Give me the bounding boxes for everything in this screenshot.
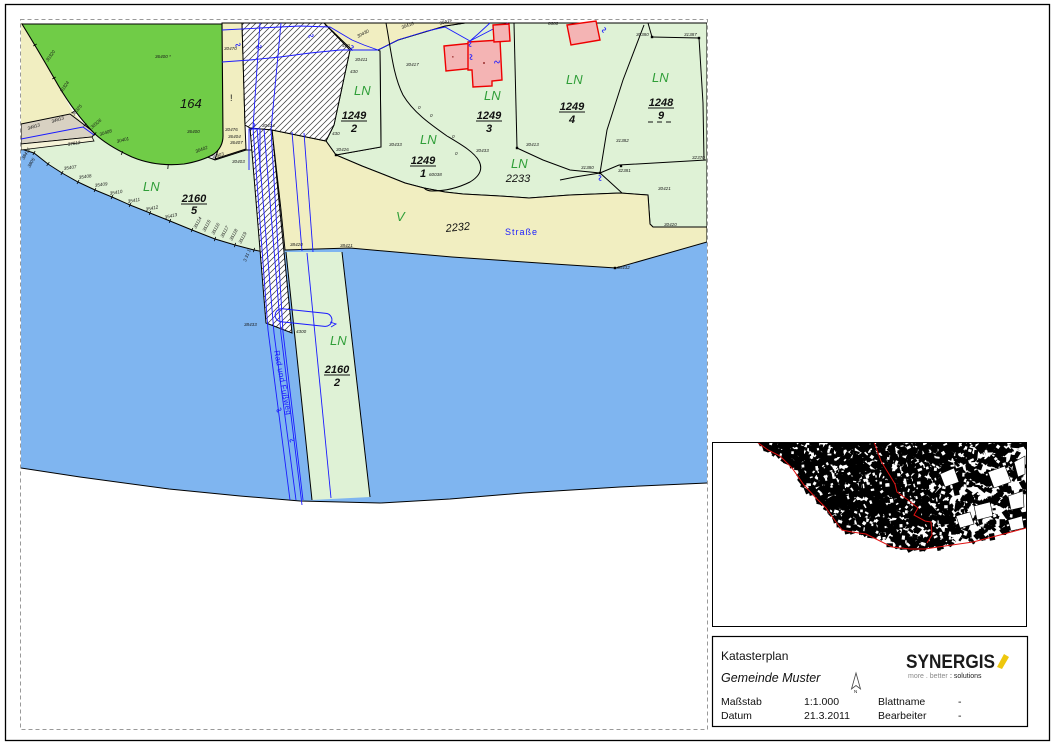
svg-text:30417: 30417 [406, 62, 419, 67]
svg-text:Datum: Datum [721, 710, 752, 722]
svg-text:!: ! [230, 93, 233, 103]
svg-text:2233: 2233 [505, 173, 531, 185]
svg-text:32370: 32370 [692, 155, 705, 160]
svg-text:38421: 38421 [340, 243, 353, 248]
svg-text:LN: LN [511, 156, 528, 171]
svg-text:21.3.2011: 21.3.2011 [804, 710, 850, 722]
svg-text:LN: LN [143, 179, 160, 194]
svg-text:30420: 30420 [664, 222, 677, 227]
svg-text:5: 5 [191, 205, 198, 217]
svg-text:Straße: Straße [505, 227, 538, 237]
svg-text:3: 3 [486, 123, 492, 135]
svg-text:2160: 2160 [324, 364, 350, 376]
svg-text:LN: LN [652, 70, 669, 85]
svg-text:9: 9 [658, 110, 665, 122]
svg-text:LN: LN [330, 333, 347, 348]
svg-text:36407: 36407 [230, 140, 243, 145]
svg-text:30424: 30424 [262, 123, 275, 128]
svg-text:430: 430 [350, 69, 358, 74]
svg-text:0: 0 [452, 134, 455, 139]
svg-text:Katasterplan: Katasterplan [721, 649, 788, 663]
svg-text:LN: LN [354, 83, 371, 98]
svg-text:30403: 30403 [232, 159, 245, 164]
svg-text:1248: 1248 [649, 97, 674, 109]
svg-text:4300: 4300 [296, 329, 307, 334]
svg-text:164: 164 [180, 96, 202, 111]
svg-text:2: 2 [350, 123, 357, 135]
svg-text:Blattname: Blattname [878, 696, 925, 708]
svg-text:Gemeinde Muster: Gemeinde Muster [721, 671, 821, 685]
svg-text:30476: 30476 [225, 127, 238, 132]
svg-text:LN: LN [566, 72, 583, 87]
svg-text:36404: 36404 [228, 134, 241, 139]
svg-text:-: - [958, 696, 962, 708]
svg-text:1:1.000: 1:1.000 [804, 696, 839, 708]
svg-text:more . better: more . better [908, 673, 948, 680]
svg-text:30470: 30470 [224, 46, 237, 51]
svg-text:36400 *: 36400 * [155, 54, 171, 59]
svg-text:32381: 32381 [618, 168, 631, 173]
svg-text:0: 0 [430, 113, 433, 118]
svg-text:1249: 1249 [342, 110, 367, 122]
svg-text:Maßstab: Maßstab [721, 696, 762, 708]
svg-text:Bearbeiter: Bearbeiter [878, 710, 927, 722]
svg-text:430: 430 [332, 131, 340, 136]
svg-text:: solutions: : solutions [950, 673, 982, 680]
svg-text:30413: 30413 [526, 142, 539, 147]
svg-text:30433: 30433 [476, 148, 489, 153]
svg-text:30411: 30411 [355, 57, 368, 62]
svg-text:0: 0 [418, 105, 421, 110]
svg-text:31382: 31382 [616, 138, 629, 143]
svg-text:4: 4 [568, 114, 575, 126]
svg-text:-: - [958, 710, 962, 722]
svg-text:38432: 38432 [617, 265, 630, 270]
svg-text:V: V [396, 209, 406, 224]
svg-text:LN: LN [420, 132, 437, 147]
svg-text:1249: 1249 [411, 155, 436, 167]
svg-text:38433: 38433 [244, 322, 257, 327]
svg-text:2: 2 [333, 377, 340, 389]
svg-text:38420: 38420 [290, 242, 303, 247]
svg-text:30380: 30380 [636, 32, 649, 37]
svg-text:2160: 2160 [181, 193, 207, 205]
svg-text:1249: 1249 [477, 110, 502, 122]
svg-text:31387: 31387 [684, 32, 697, 37]
svg-text:30426: 30426 [336, 147, 349, 152]
svg-text:8680: 8680 [548, 21, 559, 26]
svg-text:LN: LN [484, 88, 501, 103]
svg-text:30433: 30433 [389, 142, 402, 147]
svg-text:31380: 31380 [581, 165, 594, 170]
svg-text:30421: 30421 [658, 186, 671, 191]
svg-text:N: N [854, 689, 857, 694]
svg-text:SYNERGIS: SYNERGIS [906, 652, 995, 673]
svg-text:1: 1 [420, 168, 426, 180]
svg-text:430: 430 [342, 43, 350, 48]
svg-text:1249: 1249 [560, 101, 585, 113]
svg-text:0: 0 [455, 151, 458, 156]
svg-text:36400: 36400 [187, 129, 200, 134]
svg-text:60038: 60038 [429, 172, 442, 177]
